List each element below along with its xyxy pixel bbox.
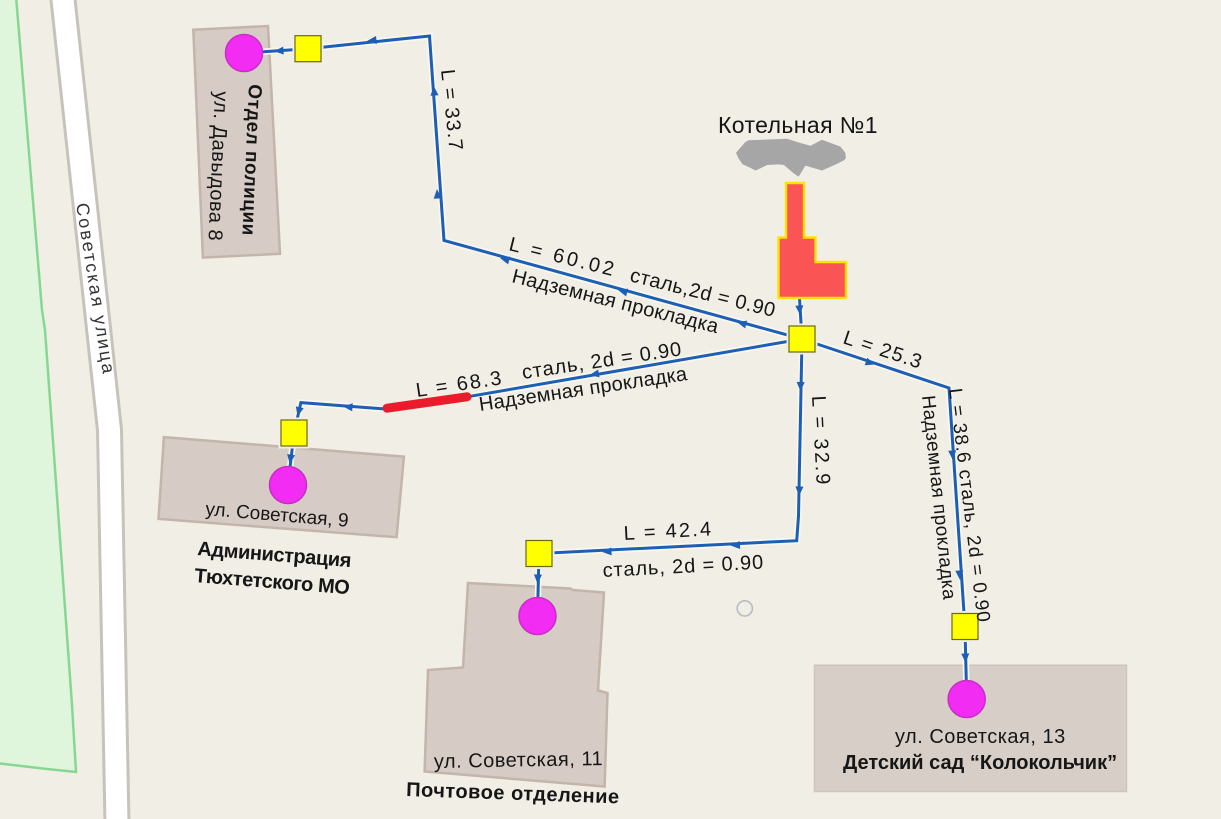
svg-text:ул. Советская, 11: ул. Советская, 11 bbox=[434, 748, 604, 773]
svg-text:Детский сад “Колокольчик”: Детский сад “Колокольчик” bbox=[843, 752, 1117, 774]
svg-text:ул. Советская, 13: ул. Советская, 13 bbox=[895, 726, 1066, 748]
svg-text:L = 42.4: L = 42.4 bbox=[623, 518, 714, 545]
svg-text:Котельная №1: Котельная №1 bbox=[718, 112, 878, 138]
